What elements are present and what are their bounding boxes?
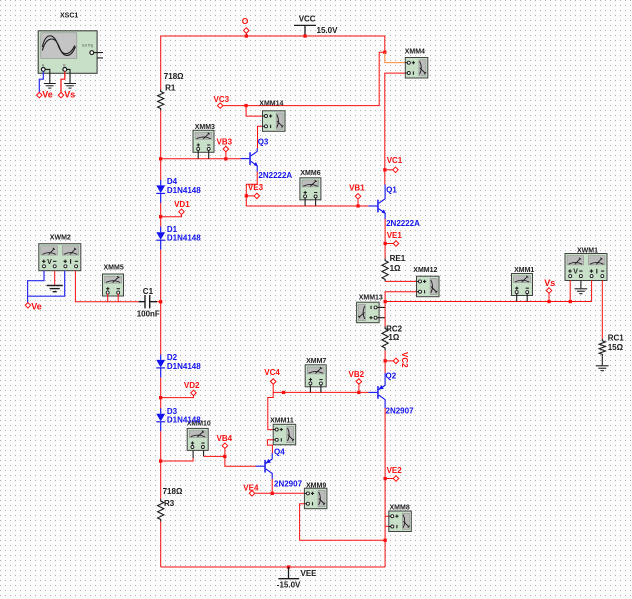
svg-text:R1: R1: [165, 84, 176, 93]
svg-text:Q4: Q4: [274, 447, 285, 456]
svg-text:Ve: Ve: [31, 302, 42, 312]
svg-text:XMM11: XMM11: [270, 417, 294, 424]
svg-text:XSC1: XSC1: [60, 13, 78, 20]
svg-text:Vs: Vs: [544, 278, 555, 288]
svg-text:XMM7: XMM7: [306, 358, 326, 365]
svg-text:VE2: VE2: [387, 466, 403, 475]
svg-text:Q2: Q2: [386, 372, 397, 381]
svg-text:R3: R3: [164, 499, 175, 508]
svg-text:O: O: [242, 16, 249, 26]
svg-text:718Ω: 718Ω: [163, 487, 183, 496]
svg-text:2N2907: 2N2907: [274, 479, 303, 488]
svg-text:VE3: VE3: [248, 183, 264, 192]
svg-text:15Ω: 15Ω: [608, 343, 624, 352]
svg-text:XMM12: XMM12: [413, 267, 437, 274]
svg-text:Vs: Vs: [64, 89, 75, 99]
svg-text:XMM4: XMM4: [405, 49, 425, 56]
svg-text:VD1: VD1: [174, 200, 190, 209]
svg-text:1Ω: 1Ω: [388, 333, 399, 342]
svg-text:Ext Trig: Ext Trig: [82, 43, 93, 47]
svg-text:VD2: VD2: [184, 381, 200, 390]
svg-text:XMM13: XMM13: [359, 294, 383, 301]
svg-text:1Ω: 1Ω: [390, 264, 401, 273]
svg-text:XWM2: XWM2: [50, 235, 71, 242]
svg-text:D1N4148: D1N4148: [167, 416, 201, 425]
svg-text:D4: D4: [167, 177, 178, 186]
svg-text:-15.0V: -15.0V: [277, 580, 301, 589]
svg-text:2N2222A: 2N2222A: [386, 219, 420, 228]
svg-text:XMM1: XMM1: [514, 267, 534, 274]
svg-text:D1N4148: D1N4148: [167, 233, 201, 242]
svg-text:Q3: Q3: [258, 138, 269, 147]
svg-text:2N2222A: 2N2222A: [258, 171, 292, 180]
svg-text:D1N4148: D1N4148: [167, 186, 201, 195]
svg-text:D2: D2: [167, 353, 178, 362]
svg-text:VE1: VE1: [387, 231, 403, 240]
svg-text:VEE: VEE: [301, 569, 318, 578]
svg-text:VB4: VB4: [217, 434, 233, 443]
svg-text:VC4: VC4: [264, 368, 280, 377]
svg-text:2N2907: 2N2907: [386, 406, 415, 415]
svg-text:VB3: VB3: [217, 137, 233, 146]
svg-text:15.0V: 15.0V: [317, 26, 339, 35]
svg-text:RC1: RC1: [608, 334, 625, 343]
svg-text:VC3: VC3: [214, 95, 230, 104]
svg-text:D3: D3: [167, 407, 178, 416]
svg-text:100nF: 100nF: [137, 310, 160, 319]
svg-text:718Ω: 718Ω: [164, 72, 184, 81]
svg-text:Ve: Ve: [42, 89, 53, 99]
svg-text:C1: C1: [143, 287, 154, 296]
svg-text:VC2: VC2: [400, 352, 409, 368]
svg-text:RE1: RE1: [390, 254, 406, 263]
svg-text:VCC: VCC: [299, 15, 316, 24]
svg-text:VC1: VC1: [387, 156, 403, 165]
svg-text:XMM14: XMM14: [259, 101, 283, 108]
svg-text:VB1: VB1: [349, 184, 365, 193]
svg-text:XMM6: XMM6: [300, 170, 320, 177]
svg-text:D1N4148: D1N4148: [167, 362, 201, 371]
svg-text:XMM5: XMM5: [104, 265, 124, 272]
svg-text:VB2: VB2: [349, 370, 365, 379]
svg-text:Q1: Q1: [386, 186, 397, 195]
